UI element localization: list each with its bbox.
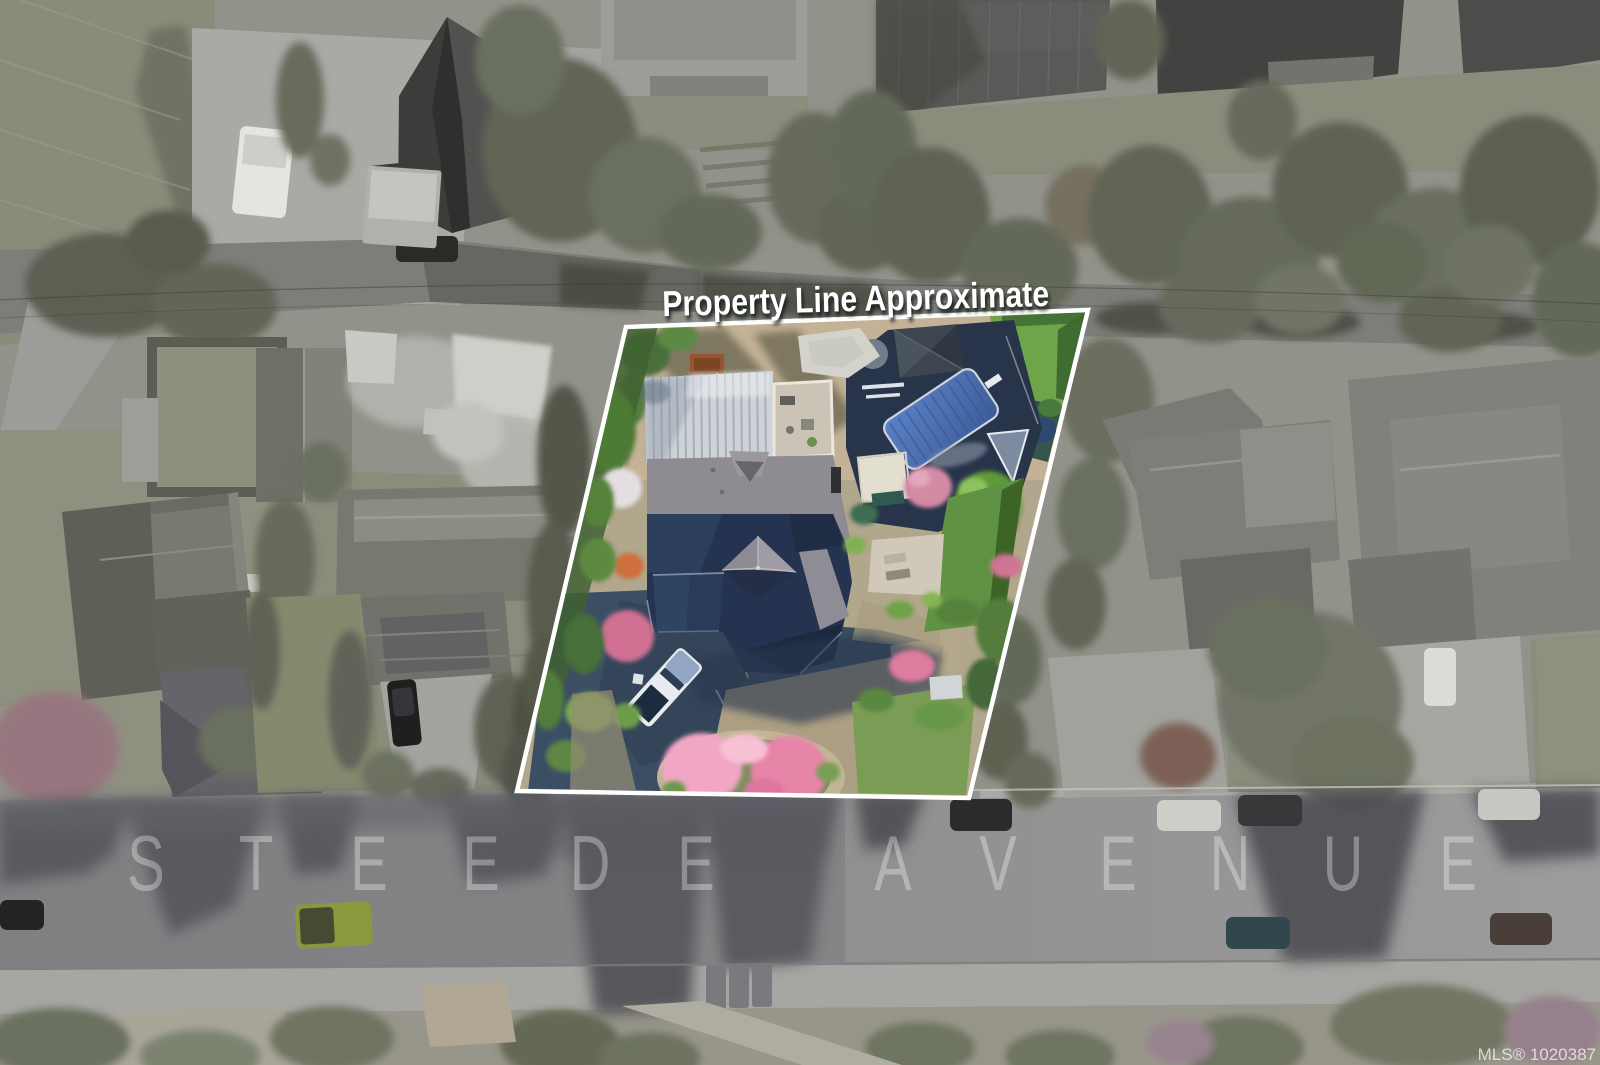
svg-text:MLS® 1020387: MLS® 1020387 [1478,1045,1596,1064]
svg-text:E: E [677,820,714,907]
svg-text:S: S [127,820,164,907]
svg-text:N: N [1210,820,1251,907]
svg-text:U: U [1323,820,1364,907]
svg-text:A: A [874,820,912,907]
svg-text:D: D [570,820,611,907]
svg-text:T: T [239,820,273,907]
svg-text:V: V [979,820,1017,907]
svg-text:E: E [350,820,387,907]
svg-text:E: E [1099,820,1136,907]
svg-text:E: E [1439,820,1476,907]
svg-text:E: E [462,820,499,907]
